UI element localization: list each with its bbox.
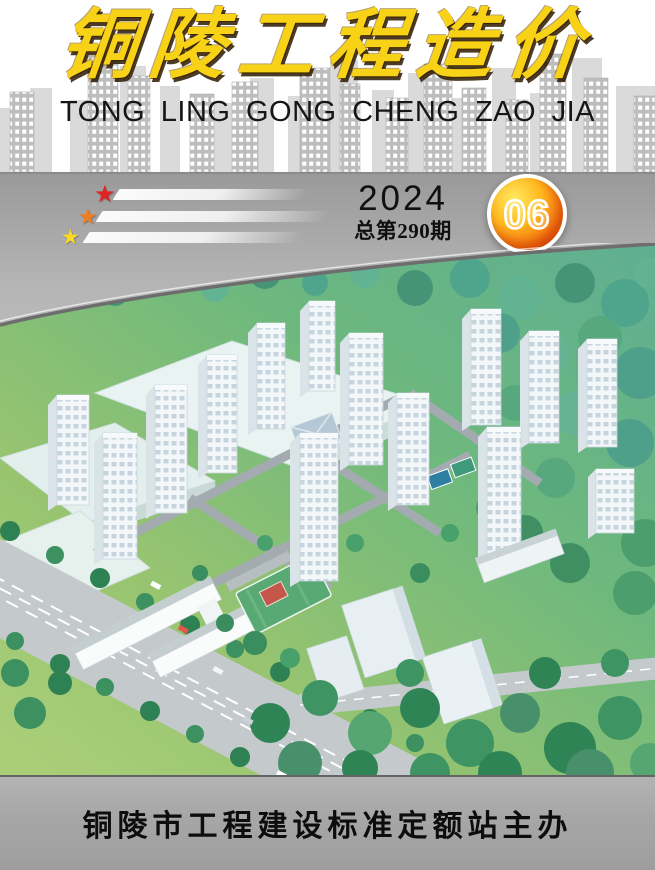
decor-stripe-2 <box>96 211 331 222</box>
tower <box>462 309 501 431</box>
tower <box>94 433 137 565</box>
decor-stripe-3 <box>83 232 305 243</box>
publisher-text: 铜陵市工程建设标准定额站主办 <box>0 801 655 845</box>
issue-number-text: 06 <box>504 193 551 237</box>
aerial-photo <box>0 243 655 775</box>
tower <box>48 395 89 511</box>
tower <box>520 331 559 449</box>
tower <box>478 427 521 563</box>
tower <box>340 333 383 471</box>
year-label: 2024 <box>348 179 458 219</box>
header-area: 铜陵工程造价 TONG LING GONG CHENG ZAO JIA <box>0 0 655 172</box>
tower <box>146 385 187 519</box>
tower <box>578 339 617 453</box>
tower <box>248 323 285 435</box>
issue-number-graphic: 06 <box>491 178 563 250</box>
tower <box>290 433 338 587</box>
orange-star-icon: ★ <box>78 206 98 228</box>
tower <box>388 393 429 511</box>
tower <box>300 301 335 397</box>
issue-total-label: 总第290期 <box>348 215 458 245</box>
decor-stripe-1 <box>113 189 310 200</box>
footer-band: 铜陵市工程建设标准定额站主办 <box>0 775 655 870</box>
magazine-title-pinyin: TONG LING GONG CHENG ZAO JIA <box>0 96 655 129</box>
magazine-title: 铜陵工程造价 <box>0 2 655 92</box>
issue-number-badge: 06 <box>487 174 567 254</box>
midrise-building <box>588 469 634 539</box>
tower <box>198 355 237 479</box>
magazine-cover: 铜陵工程造价 TONG LING GONG CHENG ZAO JIA ★ ★ … <box>0 0 655 870</box>
